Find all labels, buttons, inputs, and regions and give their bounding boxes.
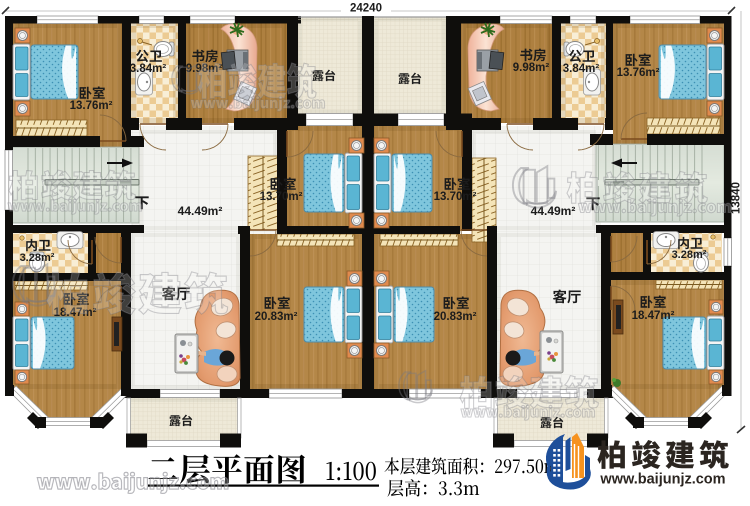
svg-text:3.28m²: 3.28m² bbox=[672, 249, 707, 261]
svg-text:18.47m²: 18.47m² bbox=[632, 310, 675, 322]
svg-text:44.49m²: 44.49m² bbox=[178, 204, 223, 218]
svg-text:20.83m²: 20.83m² bbox=[434, 311, 477, 323]
svg-text:13.76m²: 13.76m² bbox=[70, 100, 113, 112]
svg-text:13840: 13840 bbox=[731, 182, 743, 214]
svg-text:13.76m²: 13.76m² bbox=[617, 67, 660, 79]
svg-text:24240: 24240 bbox=[350, 3, 382, 15]
svg-text:3.28m²: 3.28m² bbox=[20, 252, 55, 264]
svg-text:13.70m²: 13.70m² bbox=[434, 191, 477, 203]
svg-text:www.baijunjz.com: www.baijunjz.com bbox=[599, 472, 725, 488]
svg-text:13.70m²: 13.70m² bbox=[260, 191, 303, 203]
svg-text:3.84m²: 3.84m² bbox=[130, 63, 167, 75]
svg-text:9.98m²: 9.98m² bbox=[513, 62, 550, 74]
svg-text:20.83m²: 20.83m² bbox=[255, 311, 298, 323]
svg-text:44.49m²: 44.49m² bbox=[531, 204, 576, 218]
svg-text:3.84m²: 3.84m² bbox=[563, 63, 600, 75]
